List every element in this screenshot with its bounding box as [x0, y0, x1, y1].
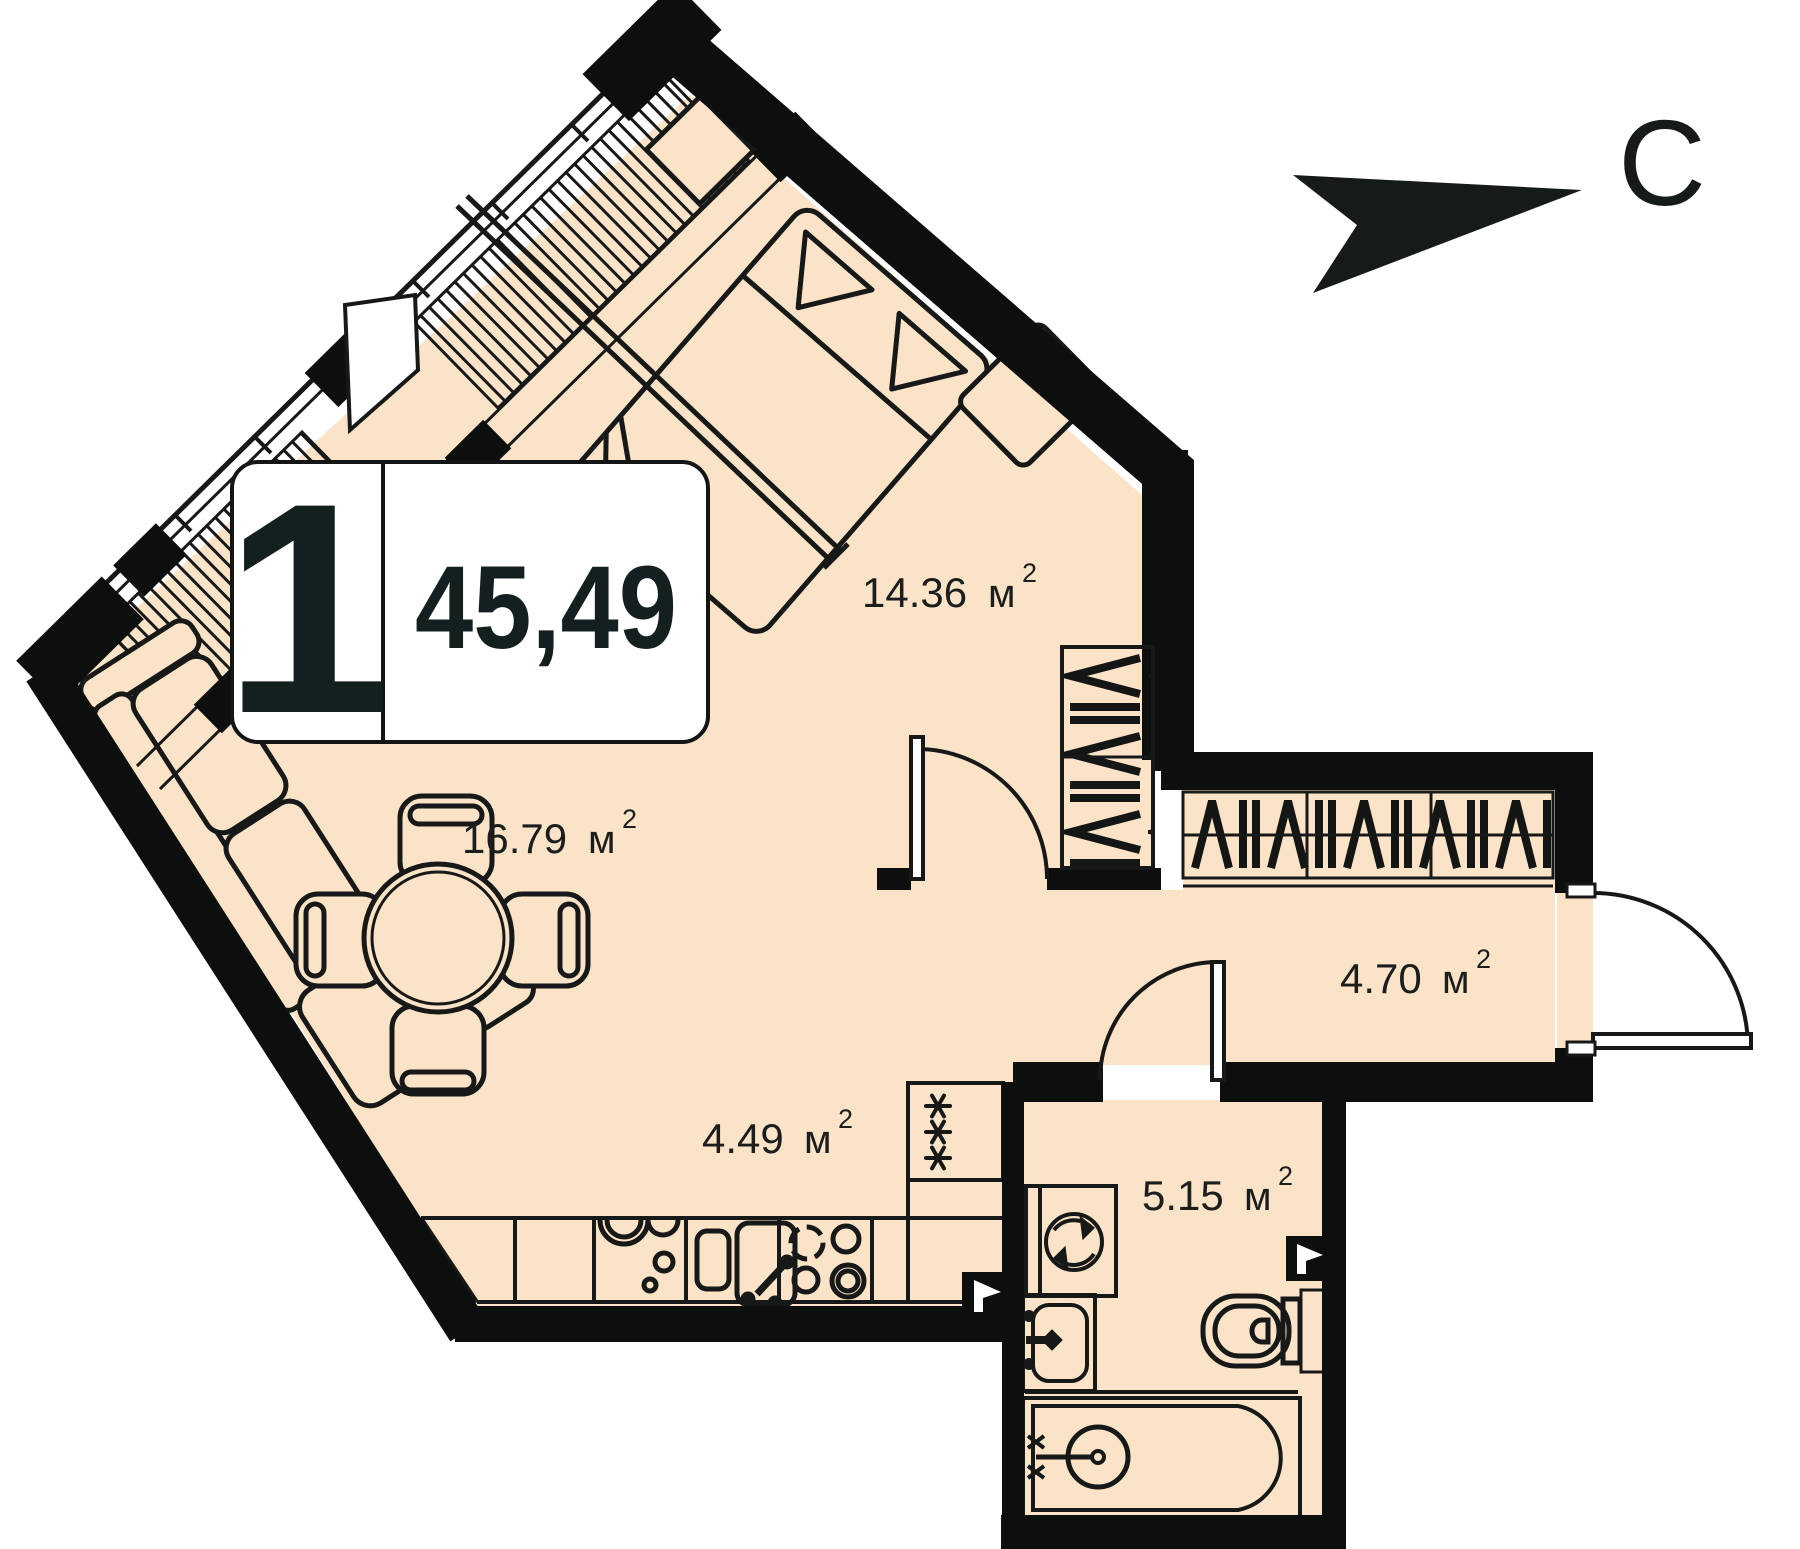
north-arrow-icon [1293, 175, 1582, 293]
svg-text:14.36: 14.36 [862, 569, 967, 616]
dining-table-icon [364, 864, 512, 1012]
svg-text:2: 2 [838, 1104, 853, 1134]
wardrobe-icon [1062, 647, 1153, 868]
svg-text:2: 2 [622, 804, 637, 834]
apartment-badge: 1 45,49 [224, 440, 708, 776]
svg-text:м: м [588, 818, 616, 862]
svg-text:16.79: 16.79 [462, 815, 567, 862]
svg-text:м: м [988, 572, 1016, 616]
svg-text:м: м [1442, 958, 1470, 1002]
hall-wardrobe-icon [1183, 792, 1553, 886]
north-label: С [1618, 95, 1706, 231]
svg-text:2: 2 [1476, 944, 1491, 974]
entrance-door-icon [1567, 884, 1751, 1055]
svg-text:5.15: 5.15 [1142, 1172, 1224, 1219]
rooms-count: 1 [224, 440, 391, 776]
fridge-icon [908, 1083, 1003, 1180]
svg-text:м: м [1244, 1175, 1272, 1219]
svg-text:2: 2 [1278, 1161, 1293, 1191]
svg-text:4.49: 4.49 [702, 1115, 784, 1162]
floor-plan: 14.36 м 2 16.79 м 2 4.49 м 2 4.70 м 2 5.… [0, 0, 1800, 1549]
floor-plan-page: 14.36 м 2 16.79 м 2 4.49 м 2 4.70 м 2 5.… [0, 0, 1800, 1549]
svg-text:2: 2 [1022, 558, 1037, 588]
total-area: 45,49 [415, 542, 677, 674]
svg-text:м: м [804, 1118, 832, 1162]
svg-text:4.70: 4.70 [1340, 955, 1422, 1002]
